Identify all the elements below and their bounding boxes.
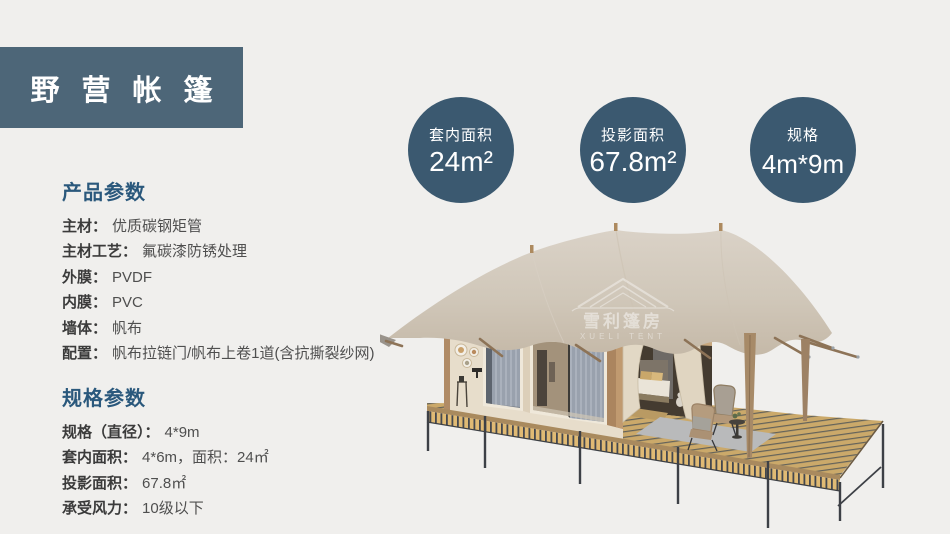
param-row: 套内面积：4*6m，面积：24㎡ — [62, 445, 392, 470]
param-label: 主材工艺： — [62, 243, 137, 260]
spec-params-section: 规格参数 规格（直径）：4*9m 套内面积：4*6m，面积：24㎡ 投影面积：6… — [62, 382, 392, 522]
param-row: 墙体：帆布 — [62, 316, 392, 341]
badge-projection-area: 投影面积 67.8m² — [580, 97, 686, 203]
watermark-brand-text: 雪利篷房 — [583, 311, 663, 331]
param-value: 4*9m — [165, 424, 200, 441]
param-value: 67.8㎡ — [142, 475, 186, 492]
badge-value: 67.8m² — [589, 148, 676, 176]
param-row: 投影面积：67.8㎡ — [62, 471, 392, 496]
param-label: 墙体： — [62, 320, 107, 337]
product-sheet-page: 野营帐篷 套内面积 24m² 投影面积 67.8m² 规格 4m*9m 产品参数… — [0, 0, 950, 534]
peak-pole-tip — [530, 245, 534, 253]
badge-size: 规格 4m*9m — [750, 97, 856, 203]
param-value: 10级以下 — [142, 500, 204, 517]
param-value: 帆布拉链门/帆布上卷1道(含抗撕裂纱网) — [112, 345, 375, 362]
param-value: 4*6m，面积：24㎡ — [142, 449, 269, 466]
param-label: 承受风力： — [62, 500, 137, 517]
badge-value: 4m*9m — [762, 151, 844, 177]
badge-inner-area: 套内面积 24m² — [408, 97, 514, 203]
page-title-box: 野营帐篷 — [0, 47, 243, 128]
param-row: 内膜：PVC — [62, 290, 392, 315]
param-label: 外膜： — [62, 269, 107, 286]
param-label: 内膜： — [62, 294, 107, 311]
badge-label: 规格 — [787, 124, 819, 145]
param-value: 帆布 — [112, 320, 142, 337]
param-row: 承受风力：10级以下 — [62, 496, 392, 521]
peak-pole-tip — [719, 223, 723, 231]
badge-label: 套内面积 — [429, 124, 493, 145]
param-label: 套内面积： — [62, 449, 137, 466]
param-label: 主材： — [62, 218, 107, 235]
param-value: 氟碳漆防锈处理 — [142, 243, 247, 260]
section-heading: 规格参数 — [62, 382, 392, 411]
param-row: 主材工艺：氟碳漆防锈处理 — [62, 239, 392, 264]
tent-render-image: 雪利篷房 XUELI TENT — [380, 210, 950, 534]
param-label: 投影面积： — [62, 475, 137, 492]
param-row: 规格（直径）：4*9m — [62, 420, 392, 445]
page-title: 野营帐篷 — [8, 67, 234, 109]
param-label: 规格（直径）： — [62, 424, 160, 441]
param-row: 配置：帆布拉链门/帆布上卷1道(含抗撕裂纱网) — [62, 341, 392, 366]
param-row: 主材：优质碳钢矩管 — [62, 214, 392, 239]
param-value: PVC — [112, 294, 143, 311]
product-params-section: 产品参数 主材：优质碳钢矩管 主材工艺：氟碳漆防锈处理 外膜：PVDF 内膜：P… — [62, 176, 392, 366]
bed — [635, 360, 670, 403]
param-value: PVDF — [112, 269, 152, 286]
param-value: 优质碳钢矩管 — [112, 218, 202, 235]
param-label: 配置： — [62, 345, 107, 362]
badge-value: 24m² — [429, 148, 493, 176]
section-heading: 产品参数 — [62, 176, 392, 205]
badge-label: 投影面积 — [601, 124, 665, 145]
watermark-brand-en-text: XUELI TENT — [580, 332, 666, 341]
peak-pole-tip — [614, 223, 618, 231]
param-row: 外膜：PVDF — [62, 265, 392, 290]
